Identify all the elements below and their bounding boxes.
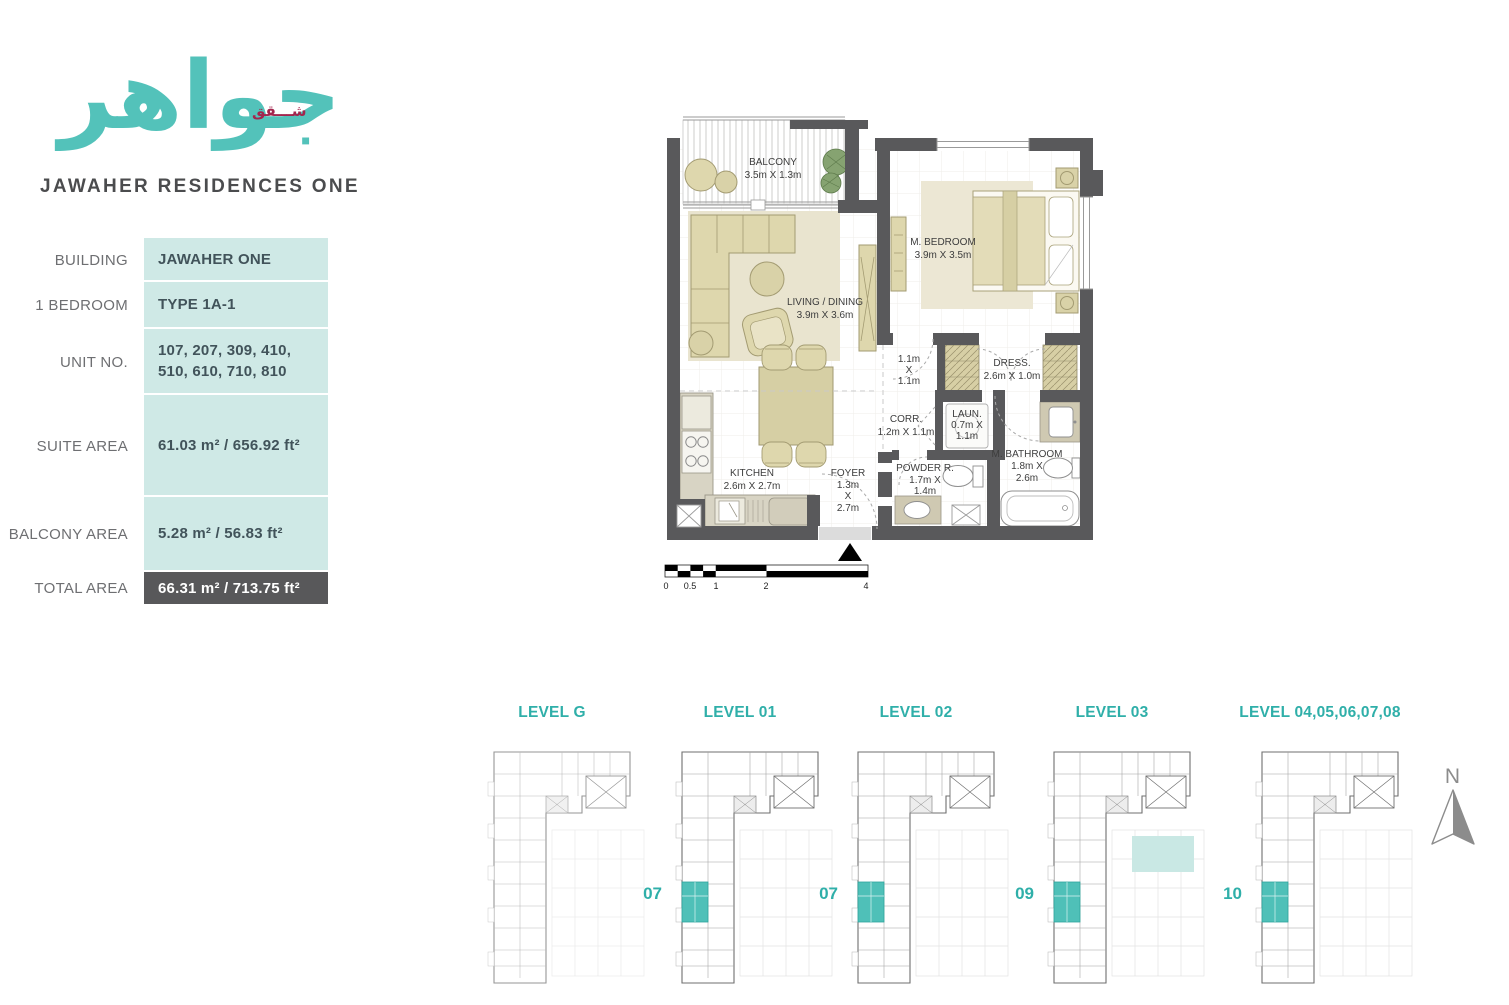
fridge-icon — [682, 396, 711, 429]
floorplan-page: جواهر شـــقق JAWAHER RESIDENCES ONE BUIL… — [0, 0, 1509, 1005]
svg-text:3.9m X 3.5m: 3.9m X 3.5m — [915, 250, 972, 261]
svg-text:1.4m: 1.4m — [914, 486, 936, 497]
scale-tick-label: 4 — [863, 581, 868, 591]
level-card-g: LEVEL G — [452, 700, 652, 995]
info-value-total-area: 66.31 m² / 713.75 ft² — [144, 572, 328, 604]
svg-text:M. BEDROOM: M. BEDROOM — [910, 237, 976, 248]
level-plan — [846, 738, 1016, 988]
bathroom-sink — [1040, 402, 1080, 442]
svg-text:3.9m X 3.6m: 3.9m X 3.6m — [797, 310, 854, 321]
svg-text:1.2m X 1.1m: 1.2m X 1.1m — [878, 427, 935, 438]
bathtub-icon — [1001, 491, 1079, 526]
kitchen-sink — [715, 498, 811, 525]
svg-text:3.5m X 1.3m: 3.5m X 1.3m — [745, 170, 802, 181]
dining-table — [759, 367, 833, 445]
brand-name: JAWAHER RESIDENCES ONE — [40, 176, 355, 198]
svg-text:POWDER R.: POWDER R. — [896, 463, 954, 474]
info-value-unitno: 107, 207, 309, 410, 510, 610, 710, 810 — [144, 329, 328, 395]
svg-text:1.1m: 1.1m — [956, 431, 978, 442]
scale-bar: 0 0.5 1 2 4 — [663, 565, 868, 591]
level-card-02: LEVEL 02 07 — [816, 700, 1016, 995]
side-table — [689, 331, 713, 355]
info-label-unitno: UNIT NO. — [26, 329, 144, 395]
info-value-balcony-area: 5.28 m² / 56.83 ft² — [144, 497, 328, 572]
unit-highlight — [858, 882, 884, 922]
svg-text:2.6m: 2.6m — [1016, 473, 1038, 484]
scale-tick-label: 0 — [663, 581, 668, 591]
unit-number: 09 — [1002, 884, 1034, 904]
powder-sink — [895, 496, 941, 524]
svg-text:LIVING / DINING: LIVING / DINING — [787, 297, 863, 308]
svg-text:M. BATHROOM: M. BATHROOM — [992, 449, 1063, 460]
unit-floor-plan: BALCONY 3.5m X 1.3m M. BEDROOM 3.9m X 3.… — [655, 105, 1105, 597]
svg-text:FOYER: FOYER — [831, 468, 865, 479]
level-card-04-08: LEVEL 04,05,06,07,08 10 — [1220, 700, 1420, 995]
scale-tick-label: 1 — [713, 581, 718, 591]
bed — [973, 191, 1079, 291]
unit-info-table: BUILDING JAWAHER ONE 1 BEDROOM TYPE 1A-1… — [26, 238, 328, 604]
pool — [1132, 836, 1194, 872]
logo-arabic-accent: شـــقق — [252, 102, 306, 120]
entrance-mat — [819, 527, 871, 540]
unit-number: 10 — [1210, 884, 1242, 904]
info-label-suite-area: SUITE AREA — [26, 395, 144, 497]
svg-text:2.6m X 2.7m: 2.6m X 2.7m — [724, 481, 781, 492]
svg-text:X: X — [906, 365, 913, 376]
brand-logo: جواهر شـــقق JAWAHER RESIDENCES ONE — [40, 40, 355, 205]
unit-number: 07 — [630, 884, 662, 904]
svg-text:0.7m X: 0.7m X — [951, 420, 983, 431]
svg-text:BALCONY: BALCONY — [749, 157, 797, 168]
scale-tick-label: 0.5 — [684, 581, 697, 591]
svg-text:1.8m X: 1.8m X — [1011, 461, 1043, 472]
level-title: LEVEL 04,05,06,07,08 — [1200, 704, 1440, 722]
info-value-suite-area: 61.03 m² / 656.92 ft² — [144, 395, 328, 497]
level-card-03: LEVEL 03 09 — [1012, 700, 1212, 995]
info-label-bedroom: 1 BEDROOM — [26, 282, 144, 329]
level-plan — [670, 738, 840, 988]
unit-number: 07 — [806, 884, 838, 904]
level-card-01: LEVEL 01 07 — [640, 700, 840, 995]
svg-text:1.7m X: 1.7m X — [909, 475, 941, 486]
svg-text:1.1m: 1.1m — [898, 354, 920, 365]
svg-text:LAUN.: LAUN. — [952, 409, 981, 420]
info-label-total-area: TOTAL AREA — [26, 572, 144, 604]
stove-icon — [682, 431, 711, 473]
level-plan — [1042, 738, 1212, 988]
north-label: N — [1428, 765, 1478, 789]
logo-arabic: جواهر — [50, 26, 350, 167]
info-label-balcony-area: BALCONY AREA — [26, 497, 144, 572]
svg-text:KITCHEN: KITCHEN — [730, 468, 774, 479]
north-arrow: N — [1428, 765, 1478, 852]
info-value-building: JAWAHER ONE — [144, 238, 328, 282]
level-title: LEVEL 03 — [992, 704, 1232, 722]
level-plan — [482, 738, 652, 988]
svg-text:1.1m: 1.1m — [898, 376, 920, 387]
svg-text:2.6m X 1.0m: 2.6m X 1.0m — [984, 371, 1041, 382]
scale-tick-label: 2 — [763, 581, 768, 591]
dresser — [891, 217, 906, 291]
level-plan — [1250, 738, 1420, 988]
coffee-table — [750, 262, 784, 296]
svg-text:CORR.: CORR. — [890, 414, 922, 425]
unit-highlight — [1262, 882, 1288, 922]
unit-highlight — [1054, 882, 1080, 922]
svg-text:2.7m: 2.7m — [837, 503, 859, 514]
info-label-building: BUILDING — [26, 238, 144, 282]
entrance-arrow — [838, 543, 862, 561]
bathroom-toilet-icon — [1044, 458, 1081, 478]
info-value-type: TYPE 1A-1 — [144, 282, 328, 329]
svg-text:1.3m: 1.3m — [837, 480, 859, 491]
svg-text:X: X — [845, 491, 852, 502]
north-arrow-icon — [1430, 789, 1476, 847]
unit-highlight — [682, 882, 708, 922]
svg-text:DRESS.: DRESS. — [993, 358, 1030, 369]
